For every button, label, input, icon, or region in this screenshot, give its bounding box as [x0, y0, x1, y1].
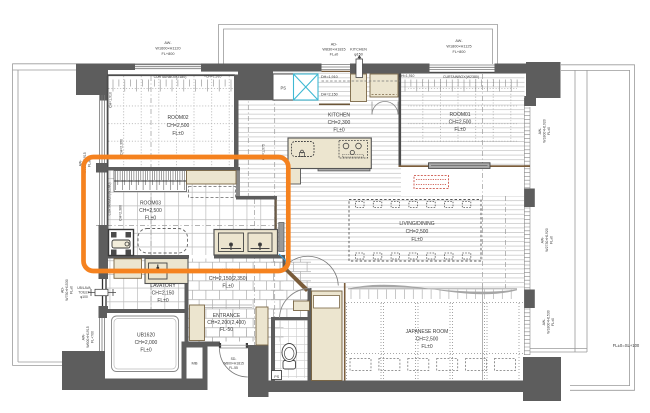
svg-text:FL±0: FL±0 — [140, 348, 152, 354]
svg-text:φ150: φ150 — [354, 53, 363, 57]
svg-text:AW-: AW- — [164, 41, 172, 45]
svg-text:UB1620: UB1620 — [137, 333, 155, 339]
svg-text:FL±0: FL±0 — [411, 237, 423, 243]
svg-text:FL±0: FL±0 — [172, 131, 184, 137]
svg-text:CH=2,380: CH=2,380 — [119, 205, 123, 221]
svg-text:PS: PS — [281, 86, 287, 91]
svg-text:AW-: AW- — [455, 39, 463, 43]
svg-text:CH=1,910: CH=1,910 — [109, 92, 113, 108]
svg-text:FL-55: FL-55 — [229, 366, 238, 370]
svg-text:DH=2,150: DH=2,150 — [321, 92, 338, 96]
svg-text:FL±0: FL±0 — [547, 127, 551, 135]
svg-text:W800×H1815: W800×H1815 — [223, 362, 244, 366]
svg-text:W1800×H1530: W1800×H1530 — [547, 310, 551, 334]
svg-text:UB/LAVA: UB/LAVA — [77, 286, 91, 290]
svg-text:W2730×H1920: W2730×H1920 — [545, 228, 549, 252]
svg-text:SD-: SD- — [231, 357, 237, 361]
svg-text:AW-: AW- — [542, 318, 546, 325]
svg-text:CH=2,500: CH=2,500 — [449, 120, 472, 126]
svg-text:FL+800: FL+800 — [162, 52, 175, 56]
svg-text:AD-: AD- — [61, 286, 65, 293]
svg-text:AW-: AW- — [538, 127, 542, 134]
svg-text:CURTAINBOX(2180): CURTAINBOX(2180) — [154, 75, 187, 79]
svg-text:CH=2,500: CH=2,500 — [167, 123, 190, 129]
svg-text:FL±0: FL±0 — [222, 284, 234, 290]
svg-text:FL±0: FL±0 — [330, 53, 339, 57]
svg-text:=CH=1,910: =CH=1,910 — [204, 75, 221, 79]
svg-text:FL-50: FL-50 — [220, 327, 233, 333]
svg-text:FL±0: FL±0 — [421, 344, 433, 350]
svg-text:FL±0: FL±0 — [145, 216, 157, 222]
svg-text:FL±0: FL±0 — [70, 286, 74, 294]
svg-text:CH=2,200(2,400): CH=2,200(2,400) — [207, 320, 246, 326]
svg-text:DH=1,910: DH=1,910 — [321, 75, 338, 79]
svg-text:ENTRANCE: ENTRANCE — [213, 313, 241, 319]
svg-text:CH=2,500: CH=2,500 — [416, 337, 439, 343]
svg-text:AD-: AD- — [331, 43, 338, 47]
svg-text:CH=2,500: CH=2,500 — [139, 208, 162, 214]
svg-text:PS: PS — [274, 375, 279, 379]
svg-text:FL±0=SL+100: FL±0=SL+100 — [613, 343, 640, 348]
svg-text:ROOM03: ROOM03 — [140, 201, 161, 207]
svg-text:W1600×H1120: W1600×H1120 — [155, 47, 180, 51]
svg-text:CH=2,390: CH=2,390 — [120, 139, 124, 155]
svg-text:FL±0: FL±0 — [551, 318, 555, 326]
svg-text:W750×H1530: W750×H1530 — [65, 279, 69, 301]
svg-text:W1800×H1125: W1800×H1125 — [446, 45, 471, 49]
svg-text:KITCHEN: KITCHEN — [350, 48, 367, 52]
svg-text:W830×H1815: W830×H1815 — [322, 48, 345, 52]
svg-text:LIVING/DINING: LIVING/DINING — [399, 221, 434, 227]
svg-text:JAPANESE ROOM: JAPANESE ROOM — [406, 329, 449, 335]
svg-text:CH=2,000: CH=2,000 — [135, 340, 158, 346]
svg-text:AW-: AW- — [541, 236, 545, 243]
svg-text:ROOM02: ROOM02 — [167, 115, 188, 121]
svg-text:MB: MB — [192, 361, 198, 366]
svg-text:CURTAINBOX(W2380): CURTAINBOX(W2380) — [108, 183, 112, 216]
svg-text:W1800×H1920: W1800×H1920 — [543, 119, 547, 143]
svg-text:FL±0: FL±0 — [157, 298, 169, 304]
svg-text:CH=2,500: CH=2,500 — [406, 229, 429, 235]
svg-text:CURTAINBOX(W2380): CURTAINBOX(W2380) — [443, 75, 479, 79]
svg-text:LAVATORY: LAVATORY — [150, 283, 176, 289]
svg-text:FL+700: FL+700 — [91, 331, 95, 343]
svg-text:CH=2,150: CH=2,150 — [152, 291, 175, 297]
svg-text:TOILET: TOILET — [78, 291, 89, 295]
svg-text:DH=1,910: DH=1,910 — [399, 74, 414, 78]
svg-text:FL±0: FL±0 — [454, 127, 466, 133]
svg-text:φ100: φ100 — [80, 295, 88, 299]
svg-text:KITCHEN: KITCHEN — [328, 113, 350, 119]
svg-text:CH=2,150(2,350): CH=2,150(2,350) — [209, 276, 248, 282]
svg-text:FL±0: FL±0 — [550, 236, 554, 244]
svg-text:FL±0: FL±0 — [333, 128, 345, 134]
svg-text:ROOM01: ROOM01 — [449, 112, 470, 118]
svg-text:W600×H1915: W600×H1915 — [86, 326, 90, 348]
svg-text:CH=2,300: CH=2,300 — [328, 120, 351, 126]
svg-text:FL+800: FL+800 — [453, 50, 466, 54]
svg-text:AW-: AW- — [82, 333, 86, 340]
